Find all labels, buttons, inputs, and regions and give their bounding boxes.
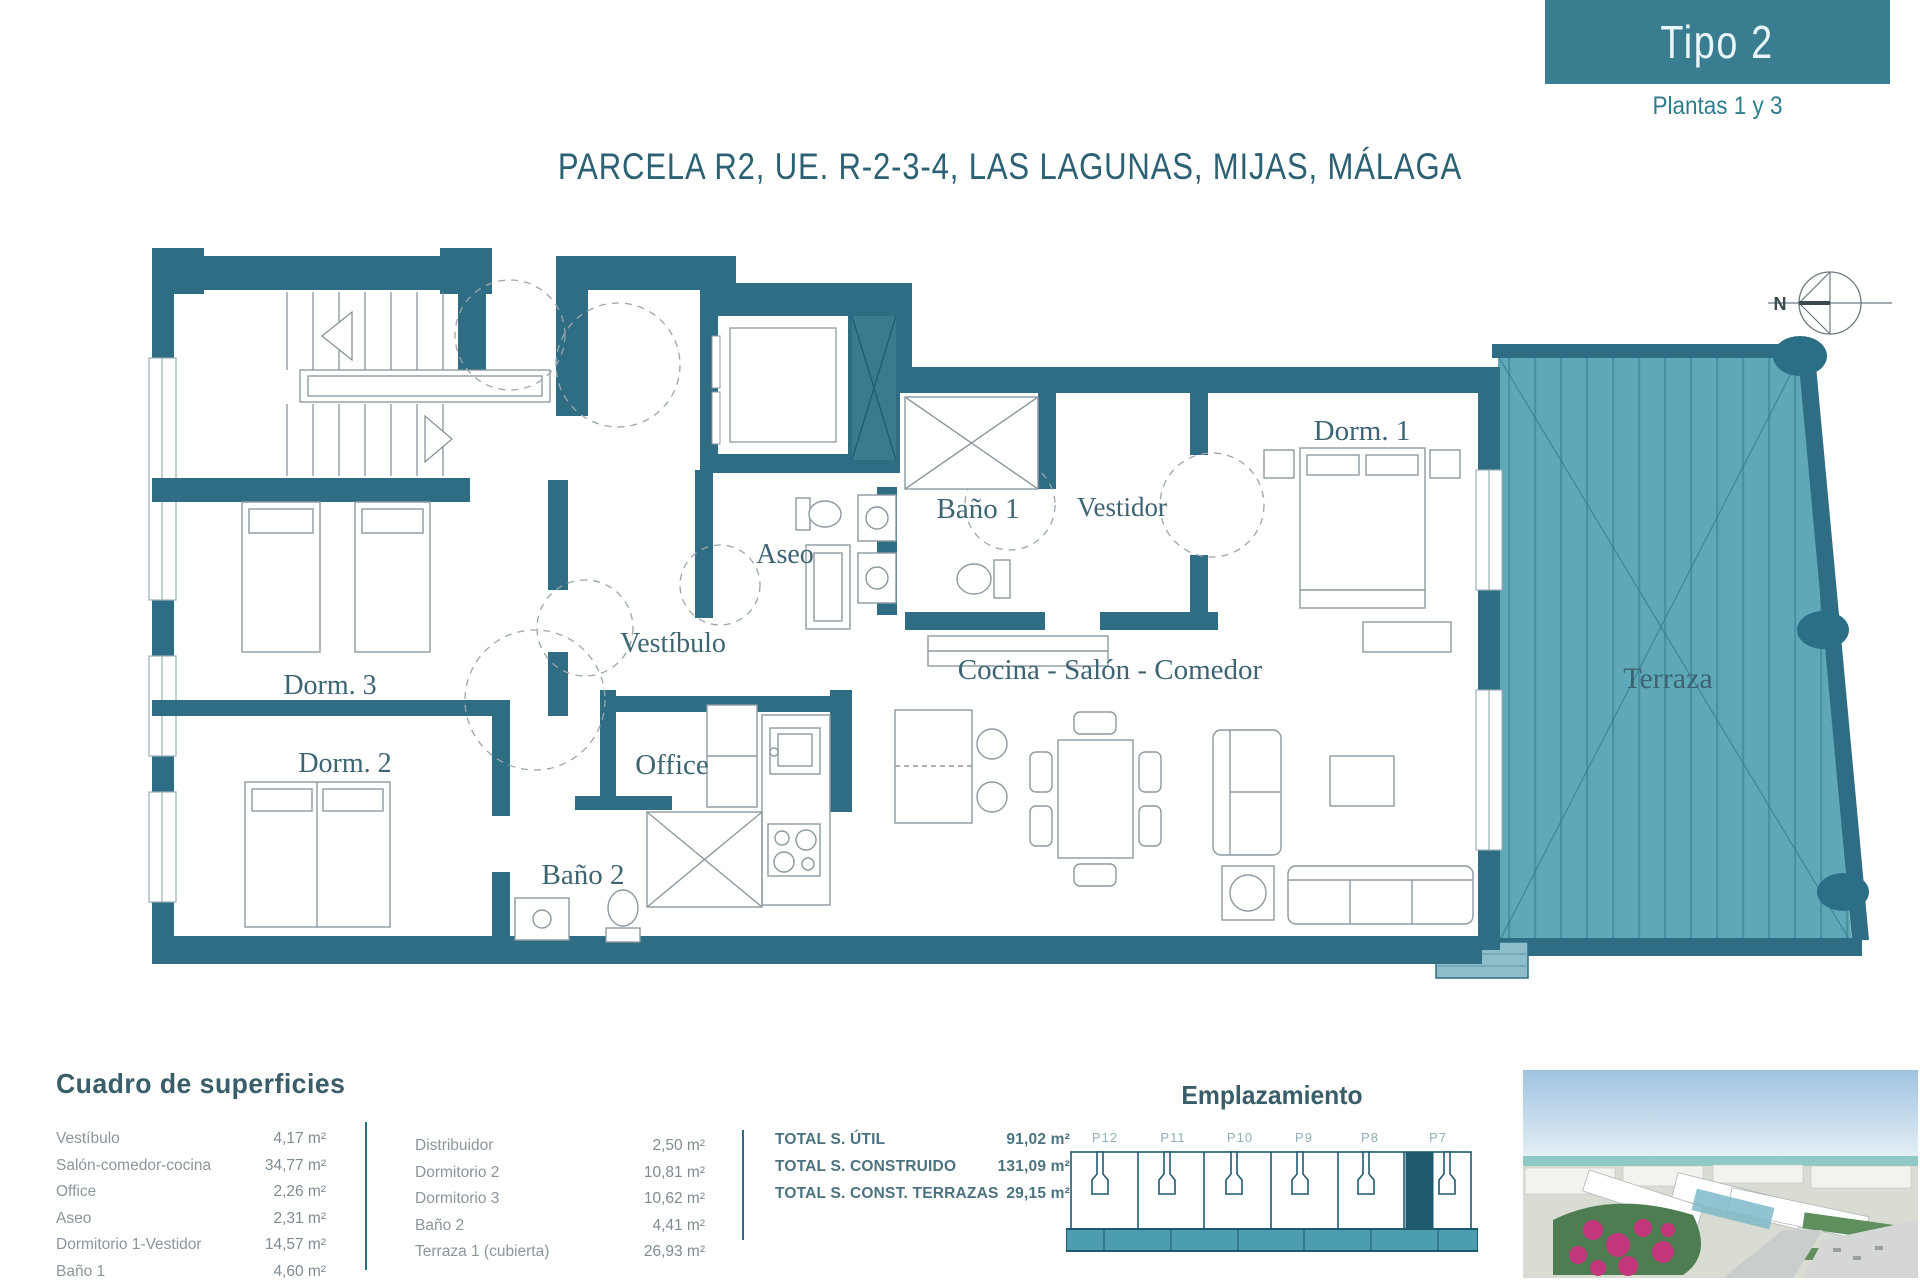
surface-row: Baño 24,41 m² [415,1213,705,1240]
surface-row: Salón-comedor-cocina34,77 m² [56,1153,326,1180]
terrace-column [1797,611,1849,649]
room-label-dorm2: Dorm. 2 [298,748,391,779]
elevator [700,283,900,473]
compass-icon: N [1768,272,1892,334]
room-label-vestidor: Vestidor [1077,492,1167,522]
surface-row: Terraza 1 (cubierta)26,93 m² [415,1239,705,1266]
plan-sheet: Tipo 2 Plantas 1 y 3 PARCELA R2, UE. R-2… [0,0,1920,1280]
surface-row: Baño 14,60 m² [56,1259,326,1280]
surfaces-totals: TOTAL S. ÚTIL91,02 m² TOTAL S. CONSTRUID… [775,1126,1070,1207]
total-row: TOTAL S. CONST. TERRAZAS29,15 m² [775,1180,1070,1207]
table-divider [365,1122,367,1270]
unit-label-p12: P12 [1092,1130,1118,1145]
wall [152,478,470,502]
room-label-dorm3: Dorm. 3 [283,670,376,701]
surfaces-heading: Cuadro de superficies [56,1068,345,1100]
terrace-area: Terraza [1436,336,1869,978]
surface-row: Dormitorio 310,62 m² [415,1186,705,1213]
surfaces-column-1: Vestíbulo4,17 m² Salón-comedor-cocina34,… [56,1126,326,1280]
toilet-bano2 [608,890,638,926]
surfaces-table: Cuadro de superficies [56,1068,361,1122]
emplazamiento-heading: Emplazamiento [1076,1080,1467,1111]
aerial-render-photo [1523,1070,1918,1278]
surface-row: Vestíbulo4,17 m² [56,1126,326,1153]
surface-row: Dormitorio 210,81 m² [415,1160,705,1187]
surface-row: Distribuidor2,50 m² [415,1133,705,1160]
total-row: TOTAL S. CONSTRUIDO131,09 m² [775,1153,1070,1180]
table-divider [742,1130,744,1240]
emplazamiento-diagram: P12 P11 P10 P9 P8 P7 [1066,1122,1478,1262]
room-label-terraza: Terraza [1623,662,1712,695]
room-label-bano2: Baño 2 [542,859,625,891]
staircase [287,292,550,476]
room-label-aseo: Aseo [756,539,814,570]
unit-label-p11: P11 [1160,1130,1185,1145]
room-label-living: Cocina - Salón - Comedor [958,654,1263,686]
unit-label-p7: P7 [1429,1130,1447,1145]
toilet-aseo [796,498,810,530]
tv-unit [1363,622,1451,652]
room-label-vestibulo: Vestíbulo [620,628,726,659]
surface-row: Dormitorio 1-Vestidor14,57 m² [56,1232,326,1259]
toilet-bano1 [994,560,1010,598]
wall [556,290,588,416]
total-row: TOTAL S. ÚTIL91,02 m² [775,1126,1070,1153]
unit-label-p9: P9 [1295,1130,1313,1145]
building-base [1066,1229,1478,1251]
surface-row: Office2,26 m² [56,1179,326,1206]
room-label-bano1: Baño 1 [937,493,1020,525]
room-label-dorm1: Dorm. 1 [1314,415,1411,447]
compass-north-label: N [1774,294,1787,314]
room-label-office: Office [635,749,709,781]
terrace-column [1817,873,1869,911]
surfaces-column-2: Distribuidor2,50 m² Dormitorio 210,81 m²… [415,1133,705,1266]
terrace-column [1773,336,1827,376]
unit-label-p10: P10 [1227,1130,1253,1145]
unit-label-p8: P8 [1361,1130,1379,1145]
surface-row: Aseo2,31 m² [56,1206,326,1233]
highlighted-unit-p7 [1406,1152,1434,1229]
